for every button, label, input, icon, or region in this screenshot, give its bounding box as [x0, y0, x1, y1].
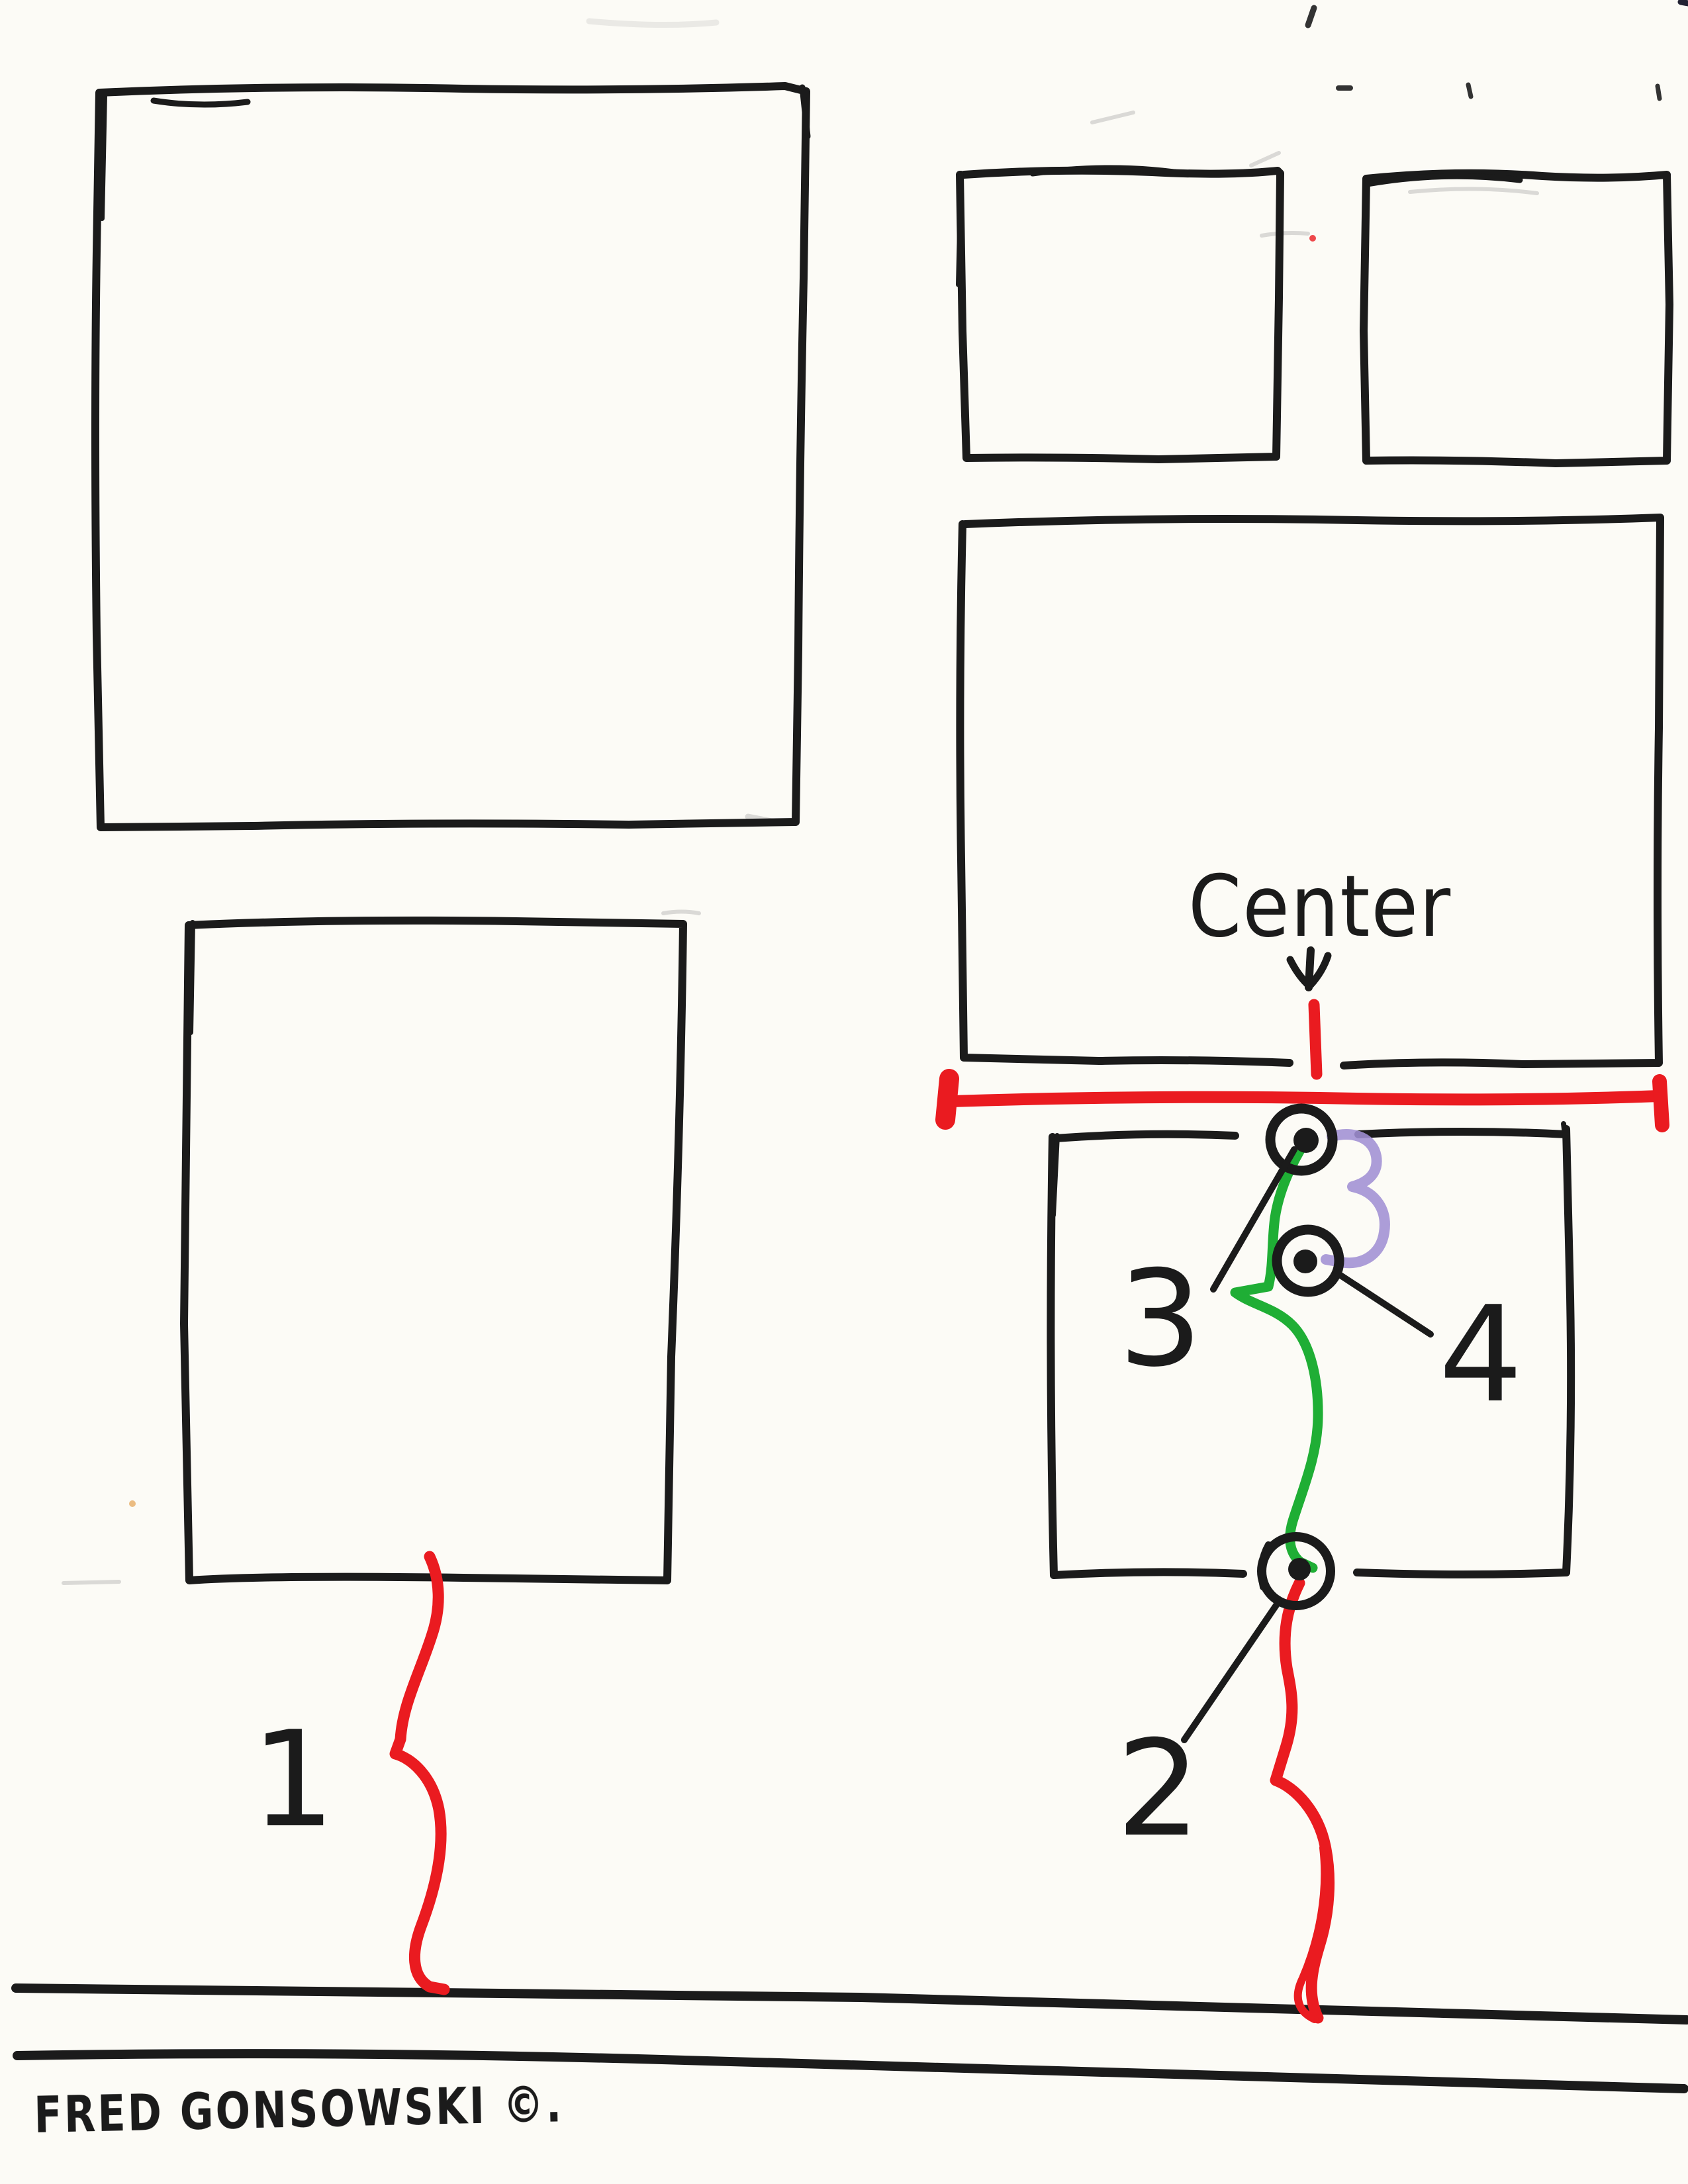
label-step-2: 2 [1116, 1712, 1200, 1866]
orange-speck [129, 1500, 136, 1507]
red-speck [1309, 235, 1316, 242]
speck-mark [1658, 86, 1660, 99]
frame-top-edge-left [1055, 1134, 1235, 1138]
center-label: Center [1188, 858, 1452, 956]
speck-mark [1468, 85, 1471, 97]
artist-signature: FRED GONSOWSKI ©. [34, 2074, 565, 2144]
red-width-line-right-cap [1660, 1081, 1662, 1125]
smudge-mark [663, 912, 699, 914]
scanner-edge-sliver [1681, 2, 1688, 3]
red-width-line [951, 1096, 1660, 1101]
frame-retrace-stroke [959, 173, 961, 285]
smudge-mark [64, 1582, 119, 1583]
label-step-4: 4 [1438, 1278, 1523, 1432]
bottom-nail-dot [1288, 1558, 1311, 1580]
red-center-tick [1314, 1005, 1317, 1074]
label-step-1: 1 [251, 1703, 335, 1857]
label-step-3: 3 [1118, 1242, 1202, 1396]
frame-right-edge [1566, 1129, 1571, 1572]
frame-retrace-stroke [191, 923, 193, 1032]
frame-bottom-edge-left [1054, 1572, 1243, 1575]
top-nail-dot [1293, 1128, 1319, 1153]
frame-top-edge-right [1358, 1132, 1566, 1134]
middle-nail-dot [1293, 1250, 1317, 1273]
scanned-sketch-page: Center 1 2 3 4 FRED GONSOWSKI ©. [0, 0, 1688, 2184]
red-width-line-left-cap [945, 1079, 949, 1120]
diagram-canvas: Center 1 2 3 4 FRED GONSOWSKI ©. [0, 0, 1688, 2184]
frame-bottom-edge-right [1357, 1572, 1566, 1574]
frame-retrace-stroke [102, 95, 105, 218]
